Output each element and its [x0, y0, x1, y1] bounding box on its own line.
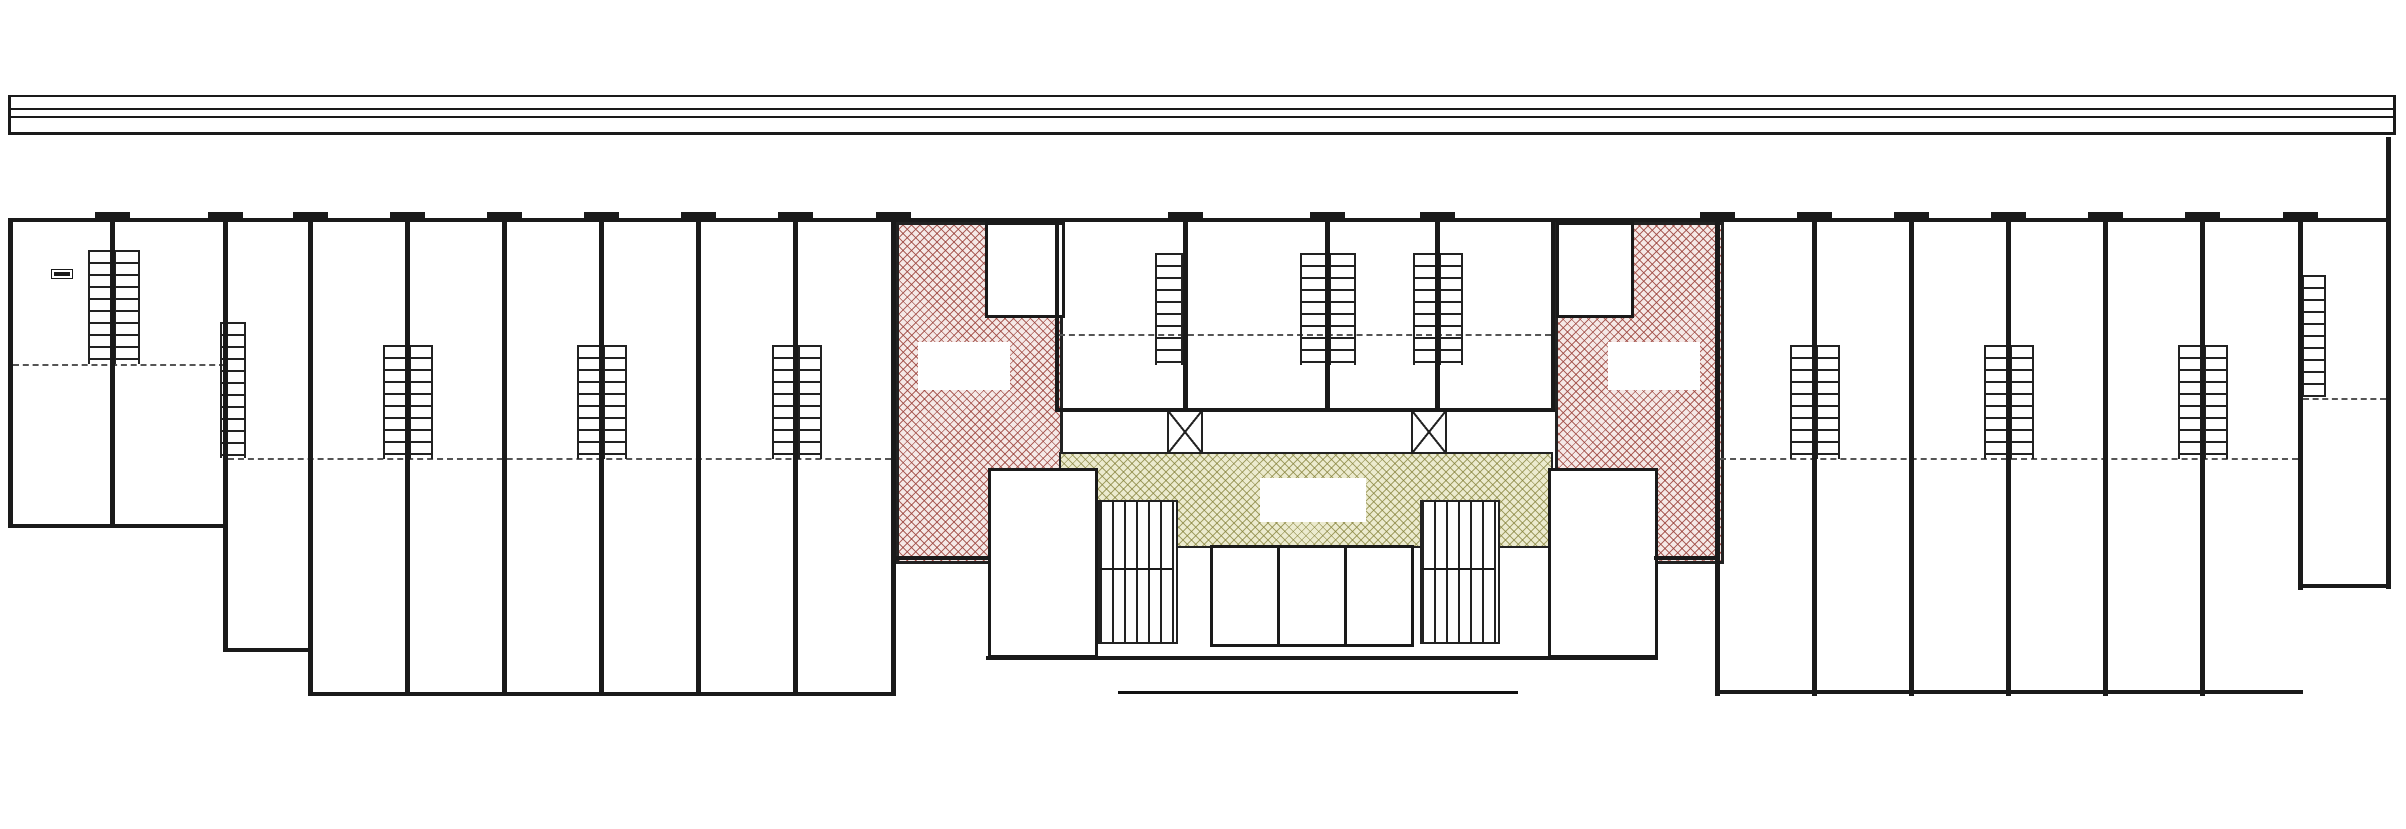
wall-pier [95, 212, 130, 219]
wall [1715, 690, 2303, 694]
wall-pier [778, 212, 813, 219]
stairs [1155, 253, 1183, 365]
stairs [798, 345, 822, 459]
mezzanine-line [2303, 398, 2386, 400]
wall-pier [876, 212, 911, 219]
wall [8, 132, 2396, 135]
shop-number [54, 272, 70, 276]
wall [223, 218, 228, 652]
stairs [1439, 253, 1463, 365]
wall [599, 218, 604, 696]
wall-pier [681, 212, 716, 219]
wall [1909, 218, 1914, 696]
wall-pier [390, 212, 425, 219]
wall-pier [2283, 212, 2318, 219]
entrance-lobby-central-label [1260, 478, 1366, 522]
lift-room-1 [985, 222, 1065, 318]
wall [1183, 220, 1188, 412]
wall [2006, 218, 2011, 696]
wall-pier [208, 212, 243, 219]
lift-room-5 [1344, 545, 1414, 647]
stairs [1790, 345, 1814, 459]
wall [891, 218, 896, 696]
wall [110, 218, 115, 528]
wall [8, 95, 11, 135]
staircase-left [1098, 500, 1178, 644]
wall [1422, 568, 1494, 570]
wall [2393, 95, 2396, 135]
wall [1325, 220, 1330, 412]
wall [2298, 584, 2391, 588]
wall-pier [584, 212, 619, 219]
wall [8, 95, 2396, 97]
wall [2200, 218, 2205, 696]
wall [2298, 218, 2303, 590]
lift-room-4 [1277, 545, 1347, 647]
wall [1812, 218, 1817, 696]
lift-room-2 [1556, 222, 1634, 318]
wall [1057, 408, 1555, 412]
mezzanine-line [13, 364, 225, 366]
plan-title [1118, 686, 1518, 694]
wall [308, 218, 313, 696]
stairs [603, 345, 627, 459]
stairs [2010, 345, 2034, 459]
wall [223, 648, 313, 652]
wall [2386, 137, 2391, 589]
wall [502, 218, 507, 696]
wall [696, 218, 701, 696]
wall [8, 524, 225, 528]
wall-pier [487, 212, 522, 219]
wall-pier [1168, 212, 1203, 219]
stairs [1329, 253, 1356, 365]
staircase-right [1420, 500, 1500, 644]
stairs [1984, 345, 2008, 459]
wall-pier [1991, 212, 2026, 219]
duct-shaft [1167, 410, 1203, 454]
wall [986, 656, 1658, 660]
wall [2103, 218, 2108, 696]
comm-water-room-1 [988, 468, 1098, 658]
comm-water-room-2 [1548, 468, 1658, 658]
wall-pier [1894, 212, 1929, 219]
wall [793, 218, 798, 696]
wall [308, 692, 896, 696]
wall [405, 218, 410, 696]
stairs [577, 345, 601, 459]
wall-pier [2185, 212, 2220, 219]
shop-01-label [14, 266, 110, 286]
wall [893, 556, 990, 560]
wall [1551, 220, 1555, 412]
floor-plan-canvas [0, 0, 2406, 829]
stairs [2178, 345, 2202, 459]
wall [8, 108, 2396, 110]
stairs [409, 345, 433, 459]
wall [1435, 220, 1440, 412]
wall-pier [1310, 212, 1345, 219]
wall [1055, 220, 1059, 412]
stairs [2302, 275, 2326, 397]
entrance-lobby-left-label [918, 342, 1010, 390]
wall-pier [293, 212, 328, 219]
stairs [1413, 253, 1437, 365]
stairs [2204, 345, 2228, 459]
wall-pier [1797, 212, 1832, 219]
stairs [383, 345, 407, 459]
duct-shaft [1411, 410, 1447, 454]
wall-pier [1700, 212, 1735, 219]
stairs [114, 250, 140, 364]
wall [8, 218, 13, 528]
wall [1654, 556, 1719, 560]
wall [8, 116, 2396, 118]
wall-pier [2088, 212, 2123, 219]
wall-pier [1420, 212, 1455, 219]
entrance-lobby-right-label [1608, 342, 1700, 390]
stairs [1300, 253, 1327, 365]
wall [1715, 218, 1720, 696]
wall [1100, 568, 1172, 570]
stairs [1816, 345, 1840, 459]
lift-room-3 [1210, 545, 1280, 647]
